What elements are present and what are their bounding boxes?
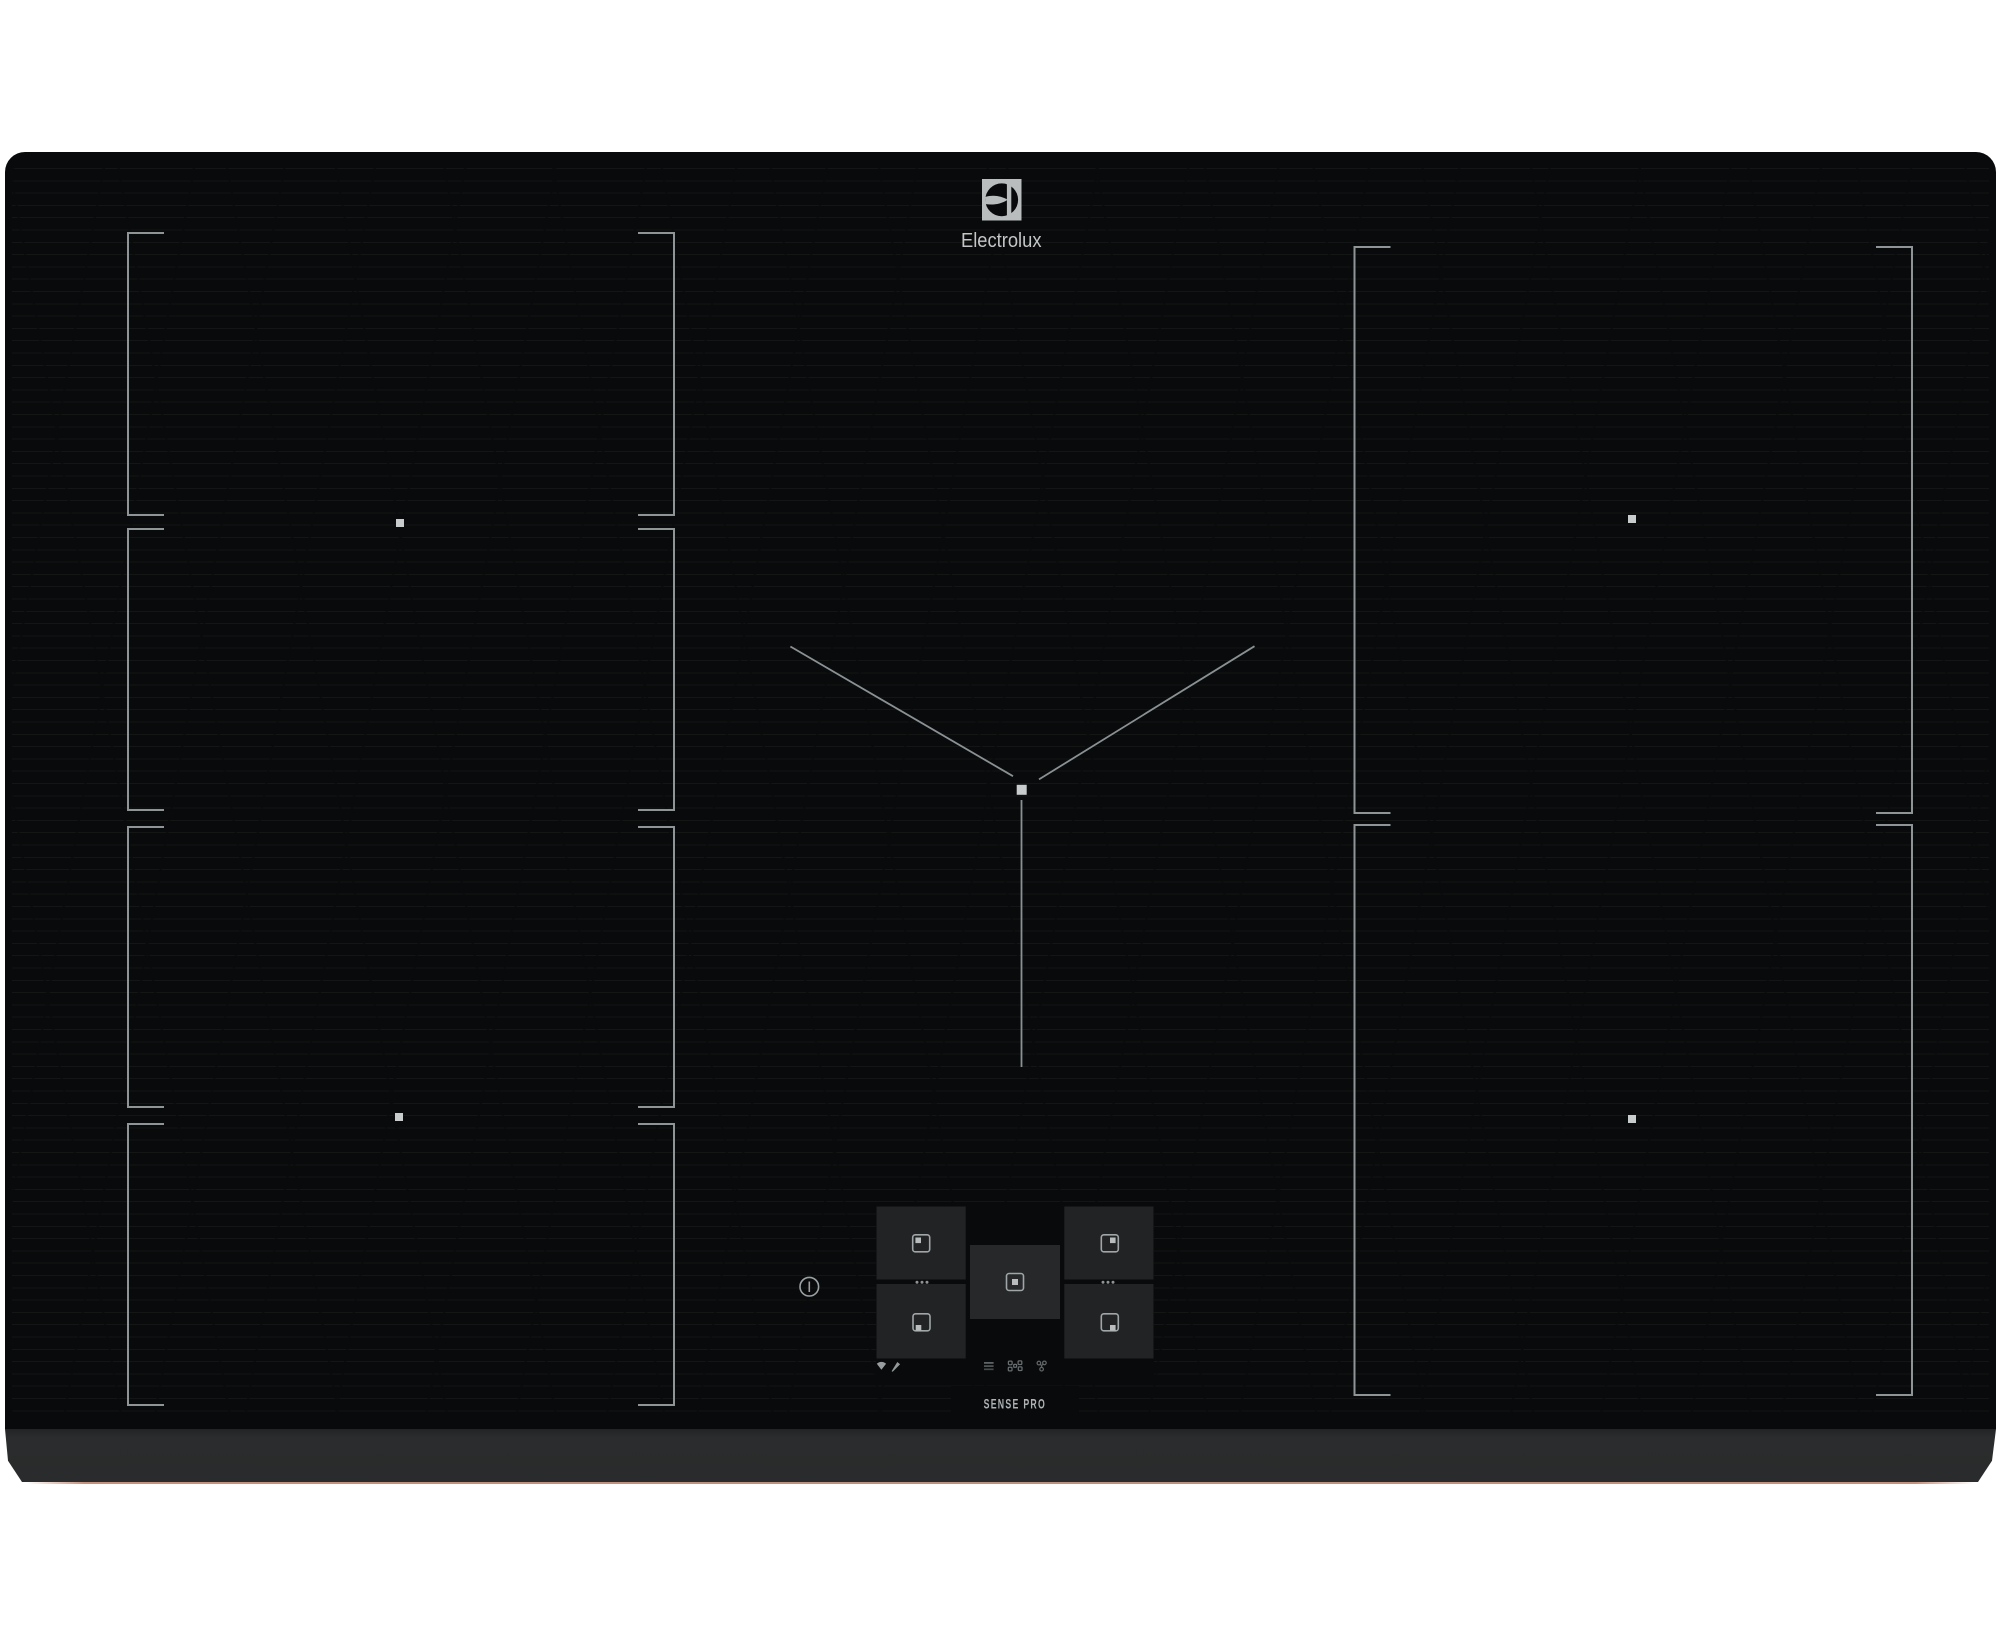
svg-text:SENSE PRO: SENSE PRO	[984, 1397, 1047, 1412]
svg-text:Electrolux: Electrolux	[961, 229, 1042, 252]
